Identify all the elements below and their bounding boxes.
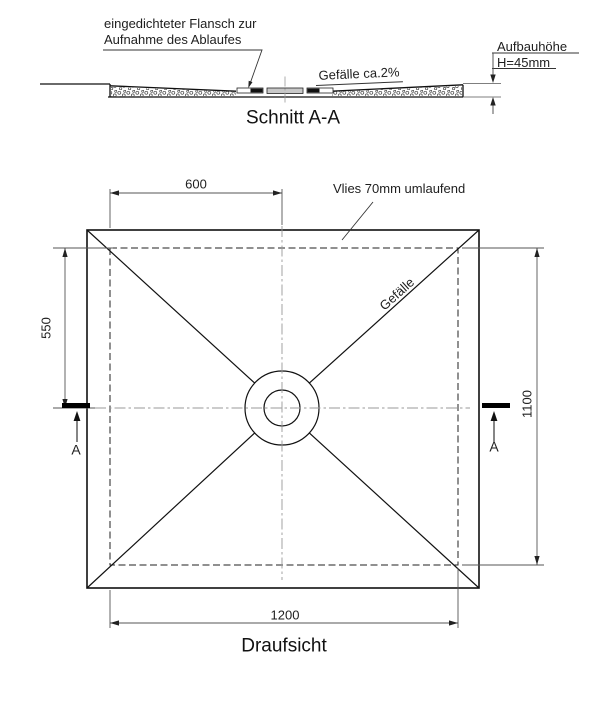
section-marker-label-right: A (489, 439, 498, 455)
section-cut-marker-right (482, 406, 510, 443)
plan-view-linework (53, 189, 544, 628)
build-height-label: Aufbauhöhe (497, 39, 567, 55)
flange-note-line2: Aufnahme des Ablaufes (104, 32, 241, 47)
fleece-note: Vlies 70mm umlaufend (333, 181, 465, 197)
dim-label-600: 600 (185, 176, 207, 192)
build-height-value: H=45mm (497, 55, 550, 71)
flange-note-line1: eingedichteter Flansch zur (104, 16, 256, 31)
plan-centerlines (95, 226, 470, 580)
section-cut-marker-left (62, 406, 90, 443)
technical-drawing-page: eingedichteter Flansch zur Aufnahme des … (0, 0, 602, 703)
section-view-title: Schnitt A-A (246, 110, 340, 126)
section-marker-label-left: A (71, 442, 80, 458)
flange-note: eingedichteter Flansch zur Aufnahme des … (104, 16, 256, 47)
plan-view-title: Draufsicht (241, 638, 327, 654)
drawing-linework (0, 0, 602, 703)
flange-note-leader (103, 50, 262, 88)
dim-label-1200: 1200 (271, 607, 300, 623)
slope-diagonals (87, 230, 479, 588)
dim-label-550: 550 (38, 317, 54, 339)
dim-label-1100: 1100 (519, 390, 535, 418)
dimension-600 (110, 189, 282, 228)
dimension-550 (53, 248, 113, 408)
fleece-note-leader (342, 202, 373, 240)
